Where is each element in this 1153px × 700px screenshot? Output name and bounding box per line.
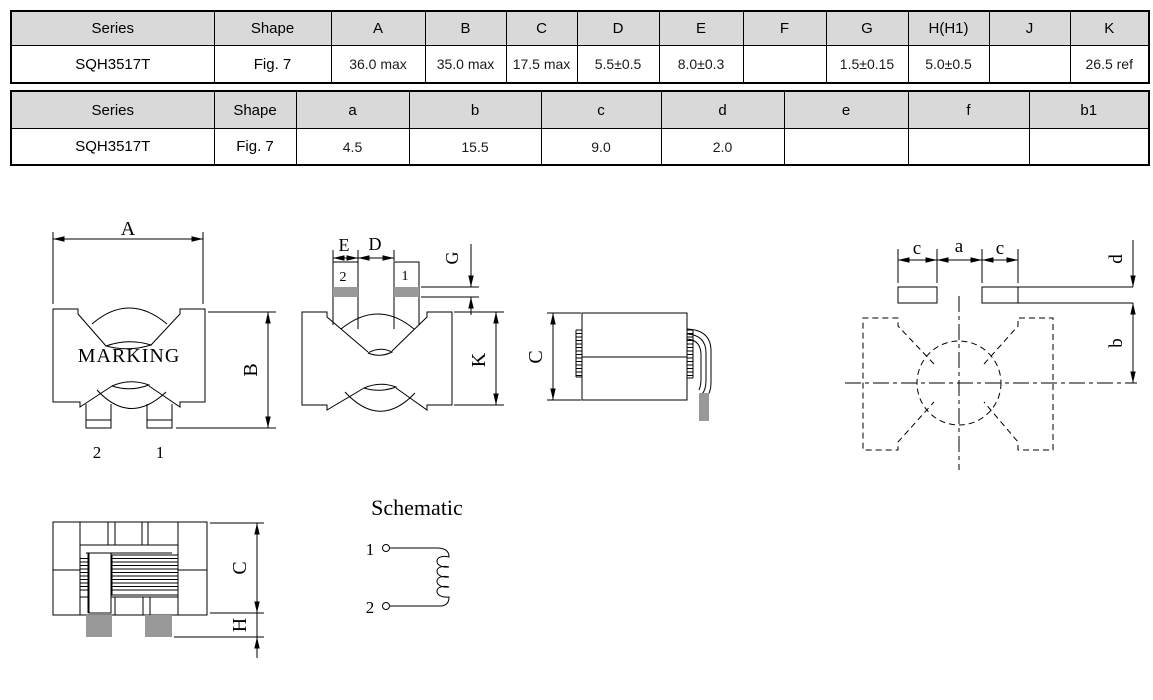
schematic-title: Schematic	[371, 495, 463, 520]
dimension-cac: c a c	[898, 236, 1018, 283]
terminal-2-node	[383, 603, 390, 610]
extension-lines	[421, 287, 479, 297]
land-pattern-drawing: c a c d b	[845, 236, 1137, 470]
terminal-legs	[86, 404, 172, 428]
coil-turns-left	[576, 330, 582, 377]
solder-pad-2	[333, 287, 358, 297]
schematic-drawing: Schematic 1 2	[366, 495, 463, 617]
center-core-leg	[89, 553, 111, 613]
datasheet-page: { "colors": { "background": "#ffffff", "…	[0, 0, 1153, 700]
dimension-B: B	[176, 312, 276, 428]
dim-label-H: H	[229, 618, 251, 632]
pin-2-label: 2	[366, 598, 375, 617]
body-outline	[582, 313, 687, 400]
winding-bulge-arcs	[341, 314, 415, 411]
center-lens-lines	[364, 349, 396, 390]
dim-label-a: a	[955, 236, 964, 257]
dim-label-D: D	[369, 234, 382, 254]
dimension-A: A	[53, 218, 203, 304]
cross-section-drawing: C H	[53, 522, 264, 658]
pin-1-label: 1	[402, 269, 409, 284]
dim-label-E: E	[339, 235, 350, 255]
dim-label-C: C	[229, 561, 251, 574]
center-lines	[845, 296, 1137, 470]
pin-1-label: 1	[366, 540, 375, 559]
dim-label-c-right: c	[996, 238, 1004, 259]
pin-2-label: 2	[93, 443, 102, 462]
dim-label-C: C	[525, 350, 547, 363]
pad-left	[898, 287, 937, 303]
marking-label: MARKING	[78, 345, 181, 367]
bottom-view-drawing: 2 1 E D G K	[302, 234, 504, 411]
extension-lines	[53, 232, 203, 304]
solder-pad-1	[394, 287, 419, 297]
coil-turns-right	[687, 330, 693, 378]
component-outline-dashed	[863, 318, 1053, 450]
dim-label-K: K	[468, 352, 490, 367]
technical-drawings: MARKING A B 2 1 2 1 E D	[0, 0, 1153, 700]
dim-label-B: B	[240, 363, 262, 376]
dim-label-G: G	[442, 252, 462, 265]
solder-pad-right	[145, 615, 172, 637]
dim-label-A: A	[121, 218, 136, 240]
dimension-D: D	[358, 234, 394, 261]
dim-label-d: d	[1106, 254, 1127, 264]
dimension-C: C	[210, 523, 264, 613]
dimension-H: H	[174, 613, 264, 658]
solder-pad-left	[86, 615, 112, 637]
dim-label-c-left: c	[913, 238, 921, 259]
pad-right	[982, 287, 1018, 303]
pin-1-label: 1	[156, 443, 165, 462]
dimension-K: K	[454, 312, 504, 405]
inductor-coil	[390, 548, 449, 606]
lead-terminal	[699, 393, 709, 421]
pad-edge-extensions	[1018, 287, 1133, 303]
dimension-C: C	[525, 313, 581, 400]
dimension-d: d	[1106, 240, 1133, 287]
dim-label-b: b	[1106, 338, 1127, 348]
side-view-drawing: C	[525, 313, 711, 421]
dimension-G: G	[421, 244, 479, 315]
pin-2-label: 2	[340, 270, 347, 285]
lead-wires	[687, 329, 711, 398]
terminal-1-node	[383, 545, 390, 552]
core-body-outline	[302, 312, 452, 410]
front-view-drawing: MARKING A B 2 1	[53, 218, 276, 462]
dimension-b: b	[1106, 303, 1133, 383]
